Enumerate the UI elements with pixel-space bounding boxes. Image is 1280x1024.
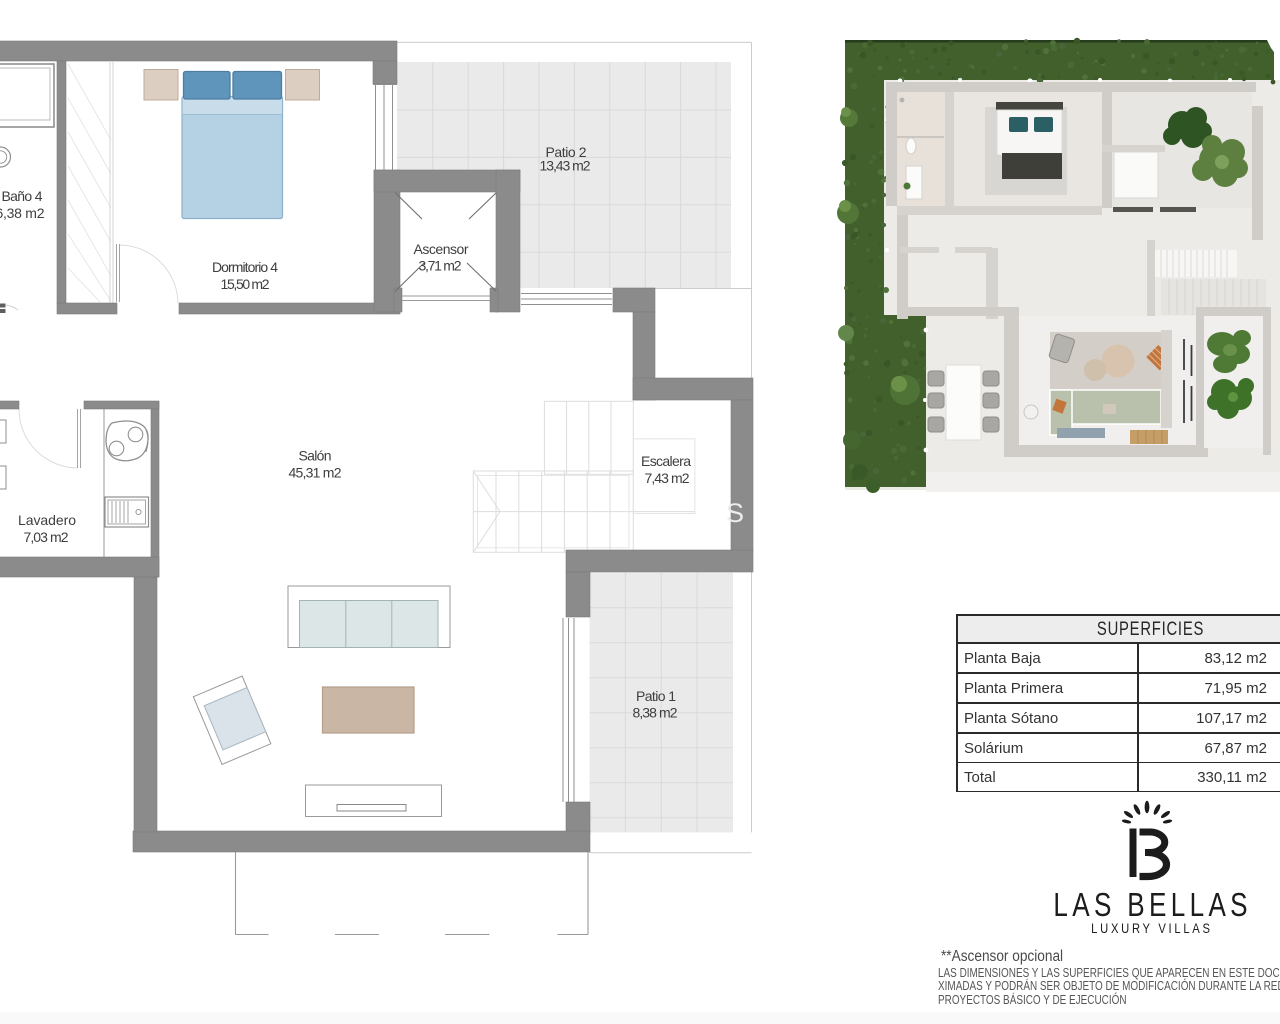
svg-text:Patio 1: Patio 1 (636, 688, 676, 704)
svg-text:7,43 m2: 7,43 m2 (645, 470, 690, 486)
svg-text:Ascensor: Ascensor (414, 241, 469, 257)
svg-text:Baño 4: Baño 4 (2, 188, 43, 204)
svg-text:Lavadero: Lavadero (18, 512, 76, 528)
svg-text:15,50 m2: 15,50 m2 (221, 276, 270, 292)
svg-text:Escalera: Escalera (641, 453, 691, 469)
svg-text:13,43 m2: 13,43 m2 (540, 158, 591, 174)
svg-text:45,31 m2: 45,31 m2 (289, 465, 342, 481)
svg-text:6,38 m2: 6,38 m2 (0, 205, 45, 221)
svg-text:7,03 m2: 7,03 m2 (24, 529, 69, 545)
svg-text:3,71 m2: 3,71 m2 (419, 258, 462, 274)
svg-text:8,38 m2: 8,38 m2 (633, 705, 678, 721)
svg-text:Salón: Salón (299, 448, 332, 464)
svg-text:S: S (726, 498, 744, 528)
svg-text:Dormitorio 4: Dormitorio 4 (212, 259, 278, 275)
